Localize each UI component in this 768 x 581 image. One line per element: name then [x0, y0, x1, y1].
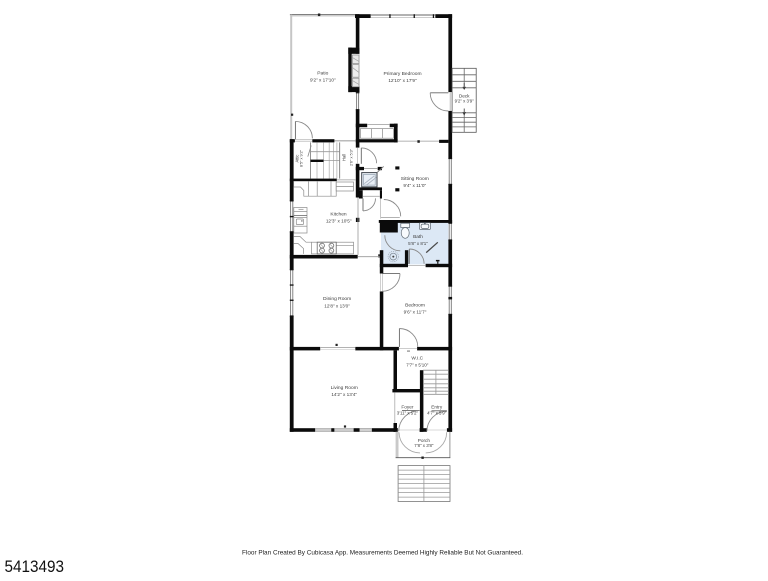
svg-text:Entry: Entry: [431, 405, 443, 410]
svg-text:Foyer: Foyer: [401, 405, 413, 410]
svg-text:Sitting Room: Sitting Room: [401, 176, 429, 182]
svg-text:Bedroom: Bedroom: [405, 302, 425, 308]
svg-text:5'8" x 8'1": 5'8" x 8'1": [408, 241, 428, 246]
svg-text:4'7" x 5'9": 4'7" x 5'9": [427, 410, 447, 415]
svg-text:12'10" x 17'9": 12'10" x 17'9": [388, 78, 417, 83]
svg-text:2'6" x 5'3": 2'6" x 5'3": [349, 148, 354, 166]
svg-text:Living Room: Living Room: [331, 385, 358, 391]
svg-text:7'7" x 5'10": 7'7" x 5'10": [406, 363, 429, 368]
svg-text:9'2" x 3'9": 9'2" x 3'9": [455, 98, 475, 103]
svg-text:W.I.C: W.I.C: [411, 356, 423, 362]
svg-text:Dining Room: Dining Room: [323, 296, 351, 302]
svg-text:7'8" x 3'8": 7'8" x 3'8": [414, 443, 434, 448]
svg-text:12'3" x 10'5": 12'3" x 10'5": [326, 219, 352, 224]
svg-text:Patio: Patio: [317, 71, 328, 77]
svg-text:9'4" x 11'0": 9'4" x 11'0": [403, 183, 426, 188]
svg-text:12'8" x 13'0": 12'8" x 13'0": [324, 304, 350, 309]
svg-text:9'2" x 17'10": 9'2" x 17'10": [310, 78, 336, 83]
svg-text:Floor Plan Created By Cubicasa: Floor Plan Created By Cubicasa App. Meas…: [242, 549, 523, 556]
svg-text:8'5" x 9'2": 8'5" x 9'2": [298, 149, 303, 167]
svg-text:Primary Bedroom: Primary Bedroom: [383, 71, 421, 77]
svg-text:3'11" x 5'2": 3'11" x 5'2": [397, 410, 419, 415]
svg-text:14'2" x 13'4": 14'2" x 13'4": [331, 392, 357, 397]
svg-text:Hall: Hall: [342, 154, 347, 161]
svg-text:5413493: 5413493: [5, 558, 65, 576]
svg-text:Kitchen: Kitchen: [330, 211, 347, 217]
svg-text:Bath: Bath: [413, 234, 423, 240]
svg-text:9'6" x 11'7": 9'6" x 11'7": [404, 310, 427, 315]
